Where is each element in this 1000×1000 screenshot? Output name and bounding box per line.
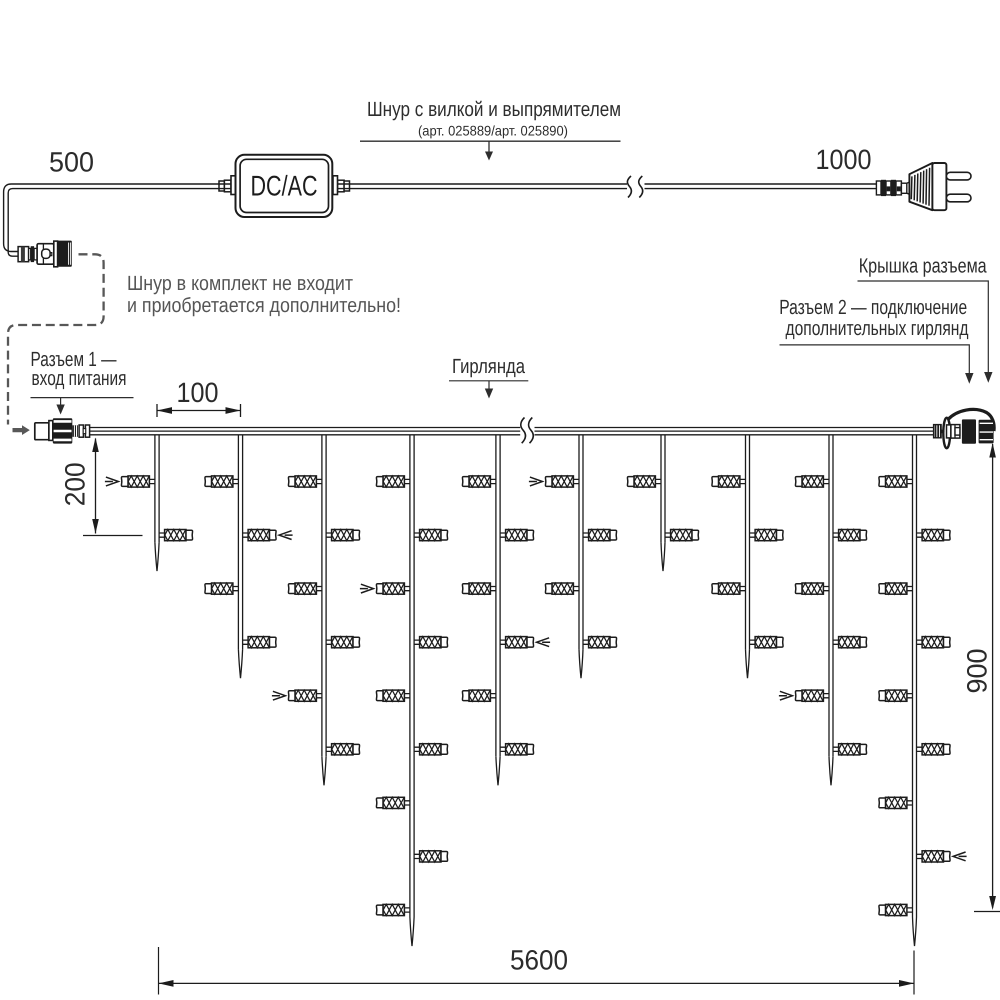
svg-text:1000: 1000	[816, 144, 872, 175]
svg-text:и приобретается дополнительно!: и приобретается дополнительно!	[127, 294, 401, 317]
svg-text:дополнительных гирлянд: дополнительных гирлянд	[786, 317, 969, 340]
svg-text:900: 900	[961, 649, 992, 694]
svg-text:Разъем 2 — подключение: Разъем 2 — подключение	[779, 296, 967, 319]
svg-text:Шнур в комплект не входит: Шнур в комплект не входит	[127, 272, 354, 295]
svg-text:DC/AC: DC/AC	[251, 171, 318, 203]
svg-text:Крышка разъема: Крышка разъема	[859, 255, 987, 278]
svg-text:Гирлянда: Гирлянда	[452, 355, 525, 378]
svg-text:100: 100	[177, 377, 219, 408]
svg-text:500: 500	[49, 147, 94, 178]
svg-text:5600: 5600	[510, 945, 568, 976]
svg-text:200: 200	[60, 462, 91, 506]
svg-text:вход питания: вход питания	[32, 367, 127, 390]
svg-text:(арт. 025889/арт. 025890): (арт. 025889/арт. 025890)	[418, 123, 568, 139]
svg-text:Шнур с вилкой и выпрямителем: Шнур с вилкой и выпрямителем	[367, 98, 621, 121]
